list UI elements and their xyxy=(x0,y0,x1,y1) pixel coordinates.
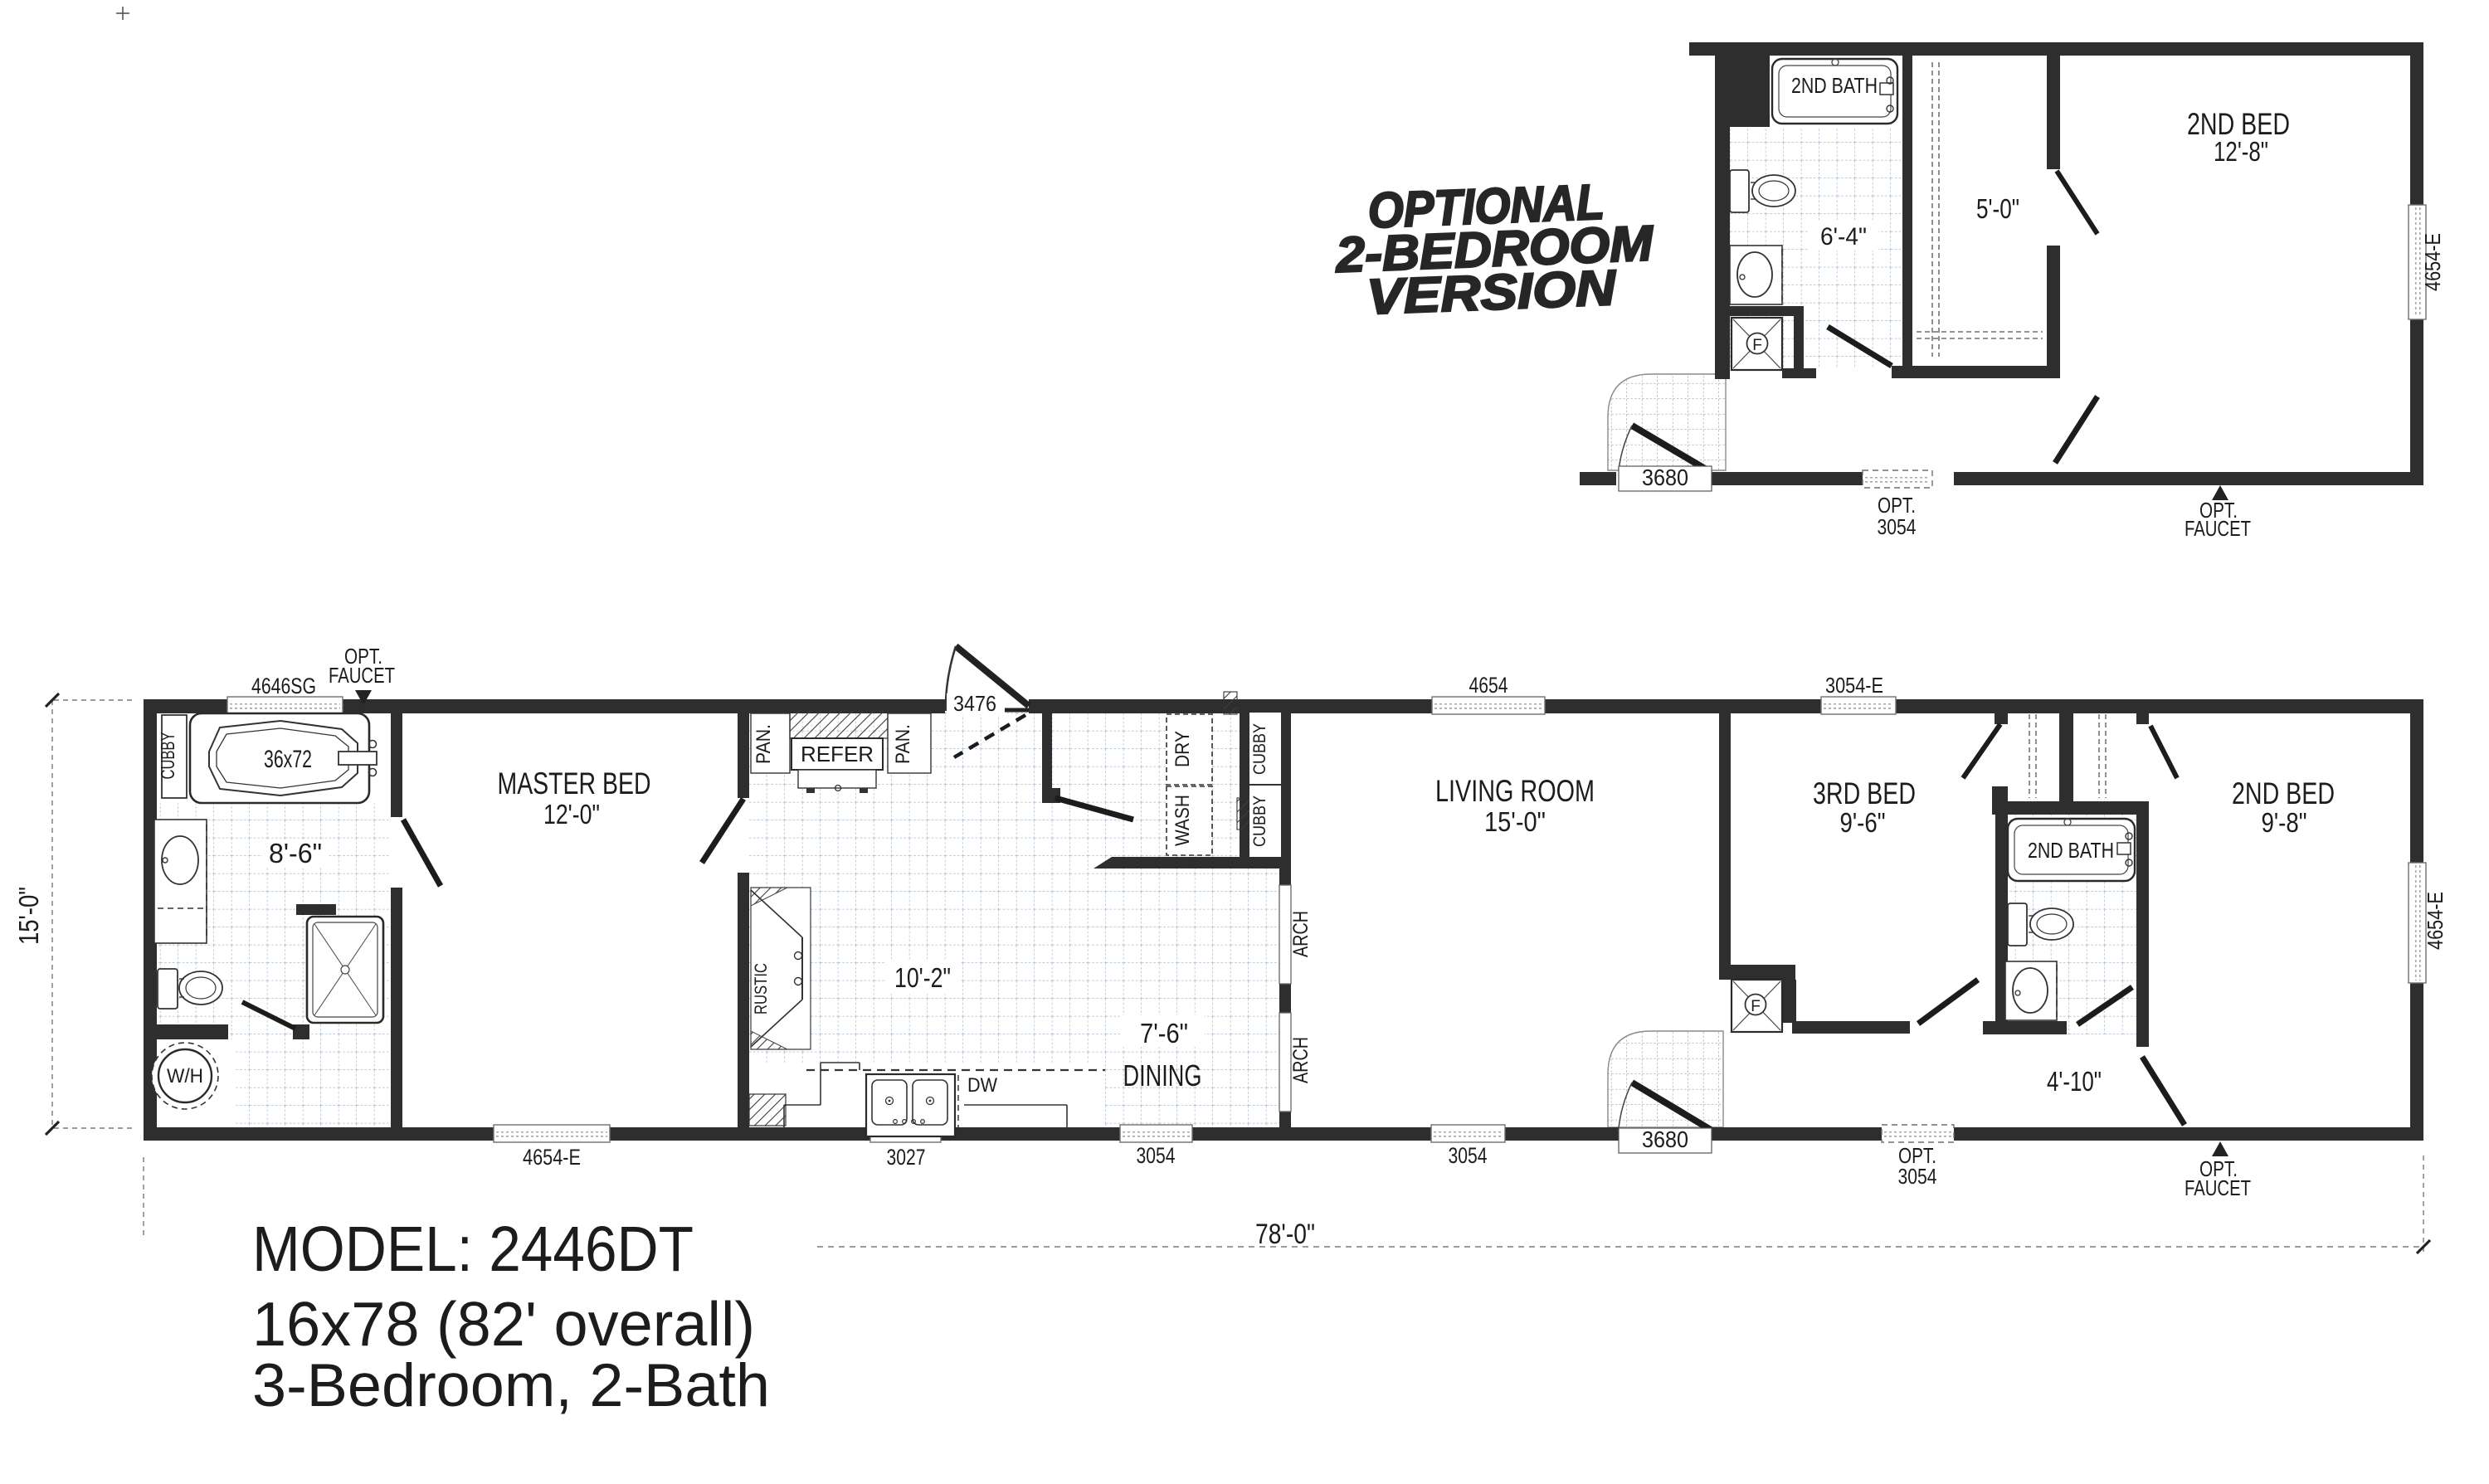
svg-text:4654-E: 4654-E xyxy=(523,1145,581,1170)
svg-text:F: F xyxy=(1751,998,1761,1015)
svg-text:9'-8": 9'-8" xyxy=(2262,807,2307,838)
svg-text:MODEL: 2446DT: MODEL: 2446DT xyxy=(252,1214,694,1285)
svg-text:15'-0": 15'-0" xyxy=(13,887,44,945)
svg-text:VERSION: VERSION xyxy=(1366,260,1618,325)
svg-text:7'-6": 7'-6" xyxy=(1140,1018,1188,1049)
svg-text:DINING: DINING xyxy=(1123,1058,1202,1092)
svg-text:3RD BED: 3RD BED xyxy=(1813,776,1916,810)
svg-text:RUSTIC: RUSTIC xyxy=(752,963,771,1014)
svg-text:3680: 3680 xyxy=(1642,1126,1688,1152)
svg-text:15'-0": 15'-0" xyxy=(1484,806,1546,837)
svg-text:3027: 3027 xyxy=(887,1145,926,1170)
svg-text:3054: 3054 xyxy=(1898,1164,1937,1189)
svg-text:2ND BED: 2ND BED xyxy=(2232,776,2335,810)
svg-text:3054: 3054 xyxy=(1137,1143,1176,1168)
svg-text:12'-0": 12'-0" xyxy=(543,799,600,830)
svg-text:6'-4": 6'-4" xyxy=(1820,223,1867,251)
svg-text:5'-0": 5'-0" xyxy=(1976,193,2019,224)
svg-text:78'-0": 78'-0" xyxy=(1255,1219,1315,1250)
svg-text:3-Bedroom, 2-Bath: 3-Bedroom, 2-Bath xyxy=(252,1352,770,1419)
svg-text:10'-2": 10'-2" xyxy=(894,962,951,993)
svg-text:FAUCET: FAUCET xyxy=(329,663,395,688)
svg-text:ARCH: ARCH xyxy=(1289,1037,1313,1083)
svg-text:3476: 3476 xyxy=(953,691,996,716)
svg-text:3054: 3054 xyxy=(1878,514,1917,539)
svg-text:4654-E: 4654-E xyxy=(2420,233,2445,291)
svg-text:8'-6": 8'-6" xyxy=(269,838,322,869)
svg-text:4654: 4654 xyxy=(1469,673,1508,698)
svg-text:CUBBY: CUBBY xyxy=(157,732,178,780)
svg-text:FAUCET: FAUCET xyxy=(2185,1175,2251,1200)
svg-text:REFER: REFER xyxy=(801,742,874,766)
svg-text:16x78 (82' overall): 16x78 (82' overall) xyxy=(252,1289,755,1359)
svg-text:FAUCET: FAUCET xyxy=(2185,516,2251,541)
svg-text:F: F xyxy=(1752,337,1762,354)
svg-text:PAN.: PAN. xyxy=(753,724,775,764)
svg-text:DW: DW xyxy=(967,1074,997,1097)
svg-text:2ND BATH: 2ND BATH xyxy=(2028,838,2114,863)
svg-text:W/H: W/H xyxy=(167,1065,203,1087)
svg-text:4'-10": 4'-10" xyxy=(2047,1066,2102,1097)
svg-text:MASTER BED: MASTER BED xyxy=(498,766,651,800)
svg-text:CUBBY: CUBBY xyxy=(1250,723,1269,775)
svg-text:4646SG: 4646SG xyxy=(251,674,316,698)
svg-text:9'-6": 9'-6" xyxy=(1840,807,1886,838)
svg-text:4654-E: 4654-E xyxy=(2423,892,2448,950)
svg-text:3054-E: 3054-E xyxy=(1825,673,1883,698)
svg-text:PAN.: PAN. xyxy=(892,724,914,764)
svg-text:12'-8": 12'-8" xyxy=(2214,136,2268,167)
svg-text:CUBBY: CUBBY xyxy=(1250,796,1269,847)
svg-text:LIVING ROOM: LIVING ROOM xyxy=(1435,774,1595,808)
svg-text:36x72: 36x72 xyxy=(264,746,312,773)
svg-text:ARCH: ARCH xyxy=(1289,911,1313,957)
svg-text:3054: 3054 xyxy=(1449,1143,1488,1168)
svg-text:2ND BATH: 2ND BATH xyxy=(1791,73,1878,98)
svg-text:DRY: DRY xyxy=(1171,731,1194,767)
svg-text:3680: 3680 xyxy=(1642,465,1688,490)
svg-text:WASH: WASH xyxy=(1171,795,1194,846)
